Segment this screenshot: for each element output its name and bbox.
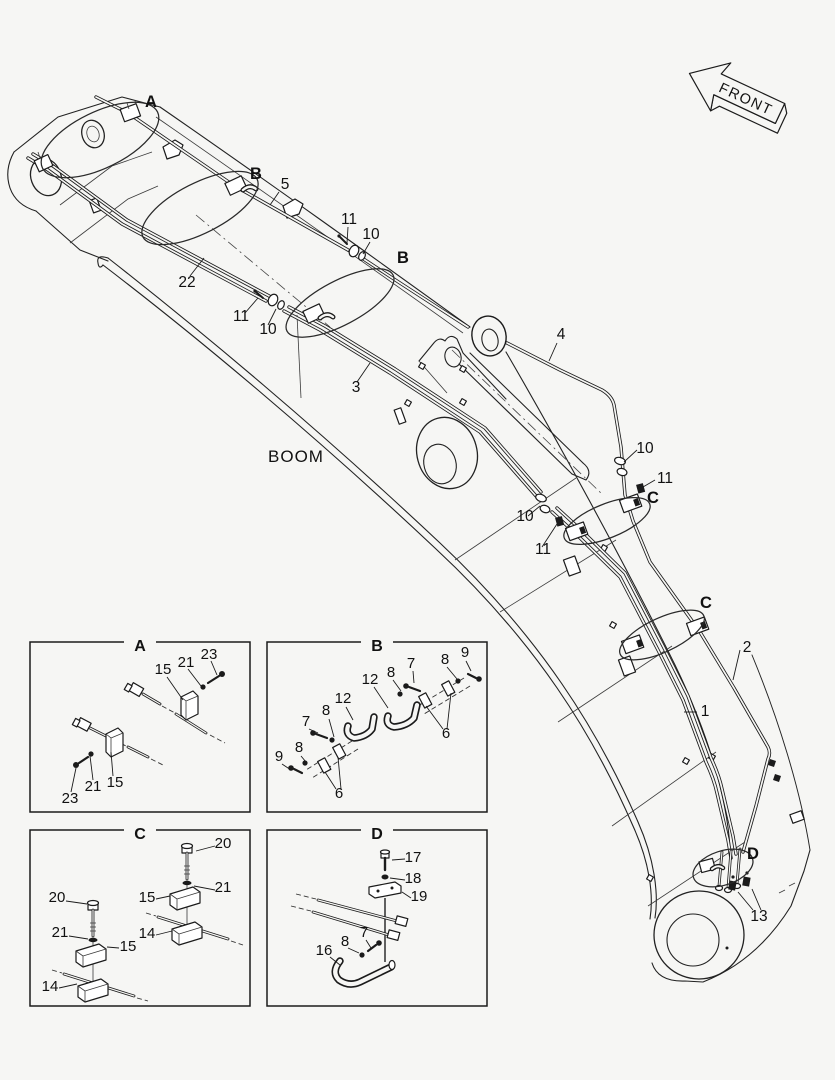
box-a-upper-assembly [124,661,225,743]
callout-fitting-10-right: 10 [636,440,654,457]
callout-fitting-10-lower: 10 [516,508,534,525]
callout-fitting-11-mid: 11 [233,308,249,325]
callout-pipe-3: 3 [352,379,361,396]
part-label-21: 21 [52,924,69,941]
boom-tip-eye-upper [78,117,108,150]
part-label-19: 19 [411,888,428,905]
part-label-6: 6 [442,725,450,742]
part-label-16: 16 [316,942,333,959]
callout-detail-d: D [747,845,759,863]
part-label-12: 12 [362,671,379,688]
arch-boss [468,313,510,359]
part-label-8: 8 [322,702,330,719]
callout-clamp-13: 13 [750,908,767,925]
boom-piping-diagram: A B B C C D 5 11 10 22 11 10 3 4 10 11 1… [0,0,835,1080]
part-label-14: 14 [139,925,156,942]
part-label-9: 9 [275,748,283,765]
detail-ellipse-b-upper [132,157,269,260]
boom-bottom-chord [108,258,656,918]
part-label-21: 21 [85,778,102,795]
part-label-21: 21 [178,654,195,671]
callout-detail-b-upper: B [250,165,262,183]
boom-tip-bottom-edge [36,211,108,261]
callout-fitting-10-top: 10 [362,226,380,243]
front-direction-arrow: FRONT [679,49,796,141]
detail-box-b-title: B [371,638,383,655]
part-label-8: 8 [295,739,303,756]
detail-box-d: D 17 18 19 [267,822,487,1006]
callout-pipe-5: 5 [281,176,290,193]
part-label-17: 17 [405,849,422,866]
pipe-bracket [790,811,804,824]
part-label-23: 23 [62,790,79,807]
detail-box-c-title: C [134,826,146,843]
part-label-21: 21 [215,879,232,896]
part-label-7: 7 [360,924,368,941]
box-d-assembly [291,850,411,984]
detail-box-c-frame [30,830,250,1006]
detail-box-c: C [30,822,250,1006]
part-label-14: 14 [42,978,59,995]
part-label-8: 8 [441,651,449,668]
part-label-7: 7 [302,713,310,730]
callout-detail-c-upper: C [647,489,659,507]
part-label-15: 15 [107,774,124,791]
callout-fitting-11-top: 11 [341,211,357,228]
callout-fitting-11-lower: 11 [535,541,551,558]
detail-box-d-title: D [371,826,383,843]
pipe-bracket [563,556,580,576]
clamp-b-lower [303,304,333,323]
part-label-12: 12 [335,690,352,707]
detail-box-b-frame [267,642,487,812]
detail-box-a-title: A [134,638,146,655]
part-label-6: 6 [335,785,343,802]
callout-detail-c-lower: C [700,594,712,612]
boom-label: BOOM [268,447,324,466]
part-label-20: 20 [215,835,232,852]
detail-box-b: B [267,634,487,812]
callout-pipe-1: 1 [701,703,710,720]
box-c-labels: 20 21 15 14 20 21 15 14 [42,835,232,995]
fitting-10-11-mid [253,289,285,310]
callout-detail-a: A [145,93,157,111]
part-label-15: 15 [155,661,172,678]
detail-box-a-frame [30,642,250,812]
part-label-8: 8 [387,664,395,681]
callout-pipe-22: 22 [178,274,195,291]
part-label-15: 15 [120,938,137,955]
part-label-20: 20 [49,889,66,906]
callout-detail-b-lower: B [397,249,409,267]
part-label-8: 8 [341,933,349,950]
part-label-15: 15 [139,889,156,906]
part-label-7: 7 [407,655,415,672]
part-label-9: 9 [461,644,469,661]
boom-foot-bottom [652,850,810,982]
main-callout-labels: A B B C C D 5 11 10 22 11 10 3 4 10 11 1… [145,93,768,925]
fitting-10-11-right [614,456,645,493]
callout-pipe-2: 2 [743,639,752,656]
pipe-bracket [394,408,406,424]
boom-top-edge [160,107,470,327]
detail-box-d-frame [267,830,487,1006]
callout-fitting-10-mid: 10 [259,321,277,338]
parts-diagram-page: A B B C C D 5 11 10 22 11 10 3 4 10 11 1… [0,0,835,1080]
callout-pipe-4: 4 [557,326,566,343]
part-label-18: 18 [405,870,422,887]
callout-fitting-11-right: 11 [657,470,673,487]
clamps-and-fittings [34,101,750,891]
detail-box-a: A 15 [30,634,250,812]
part-label-23: 23 [201,646,218,663]
